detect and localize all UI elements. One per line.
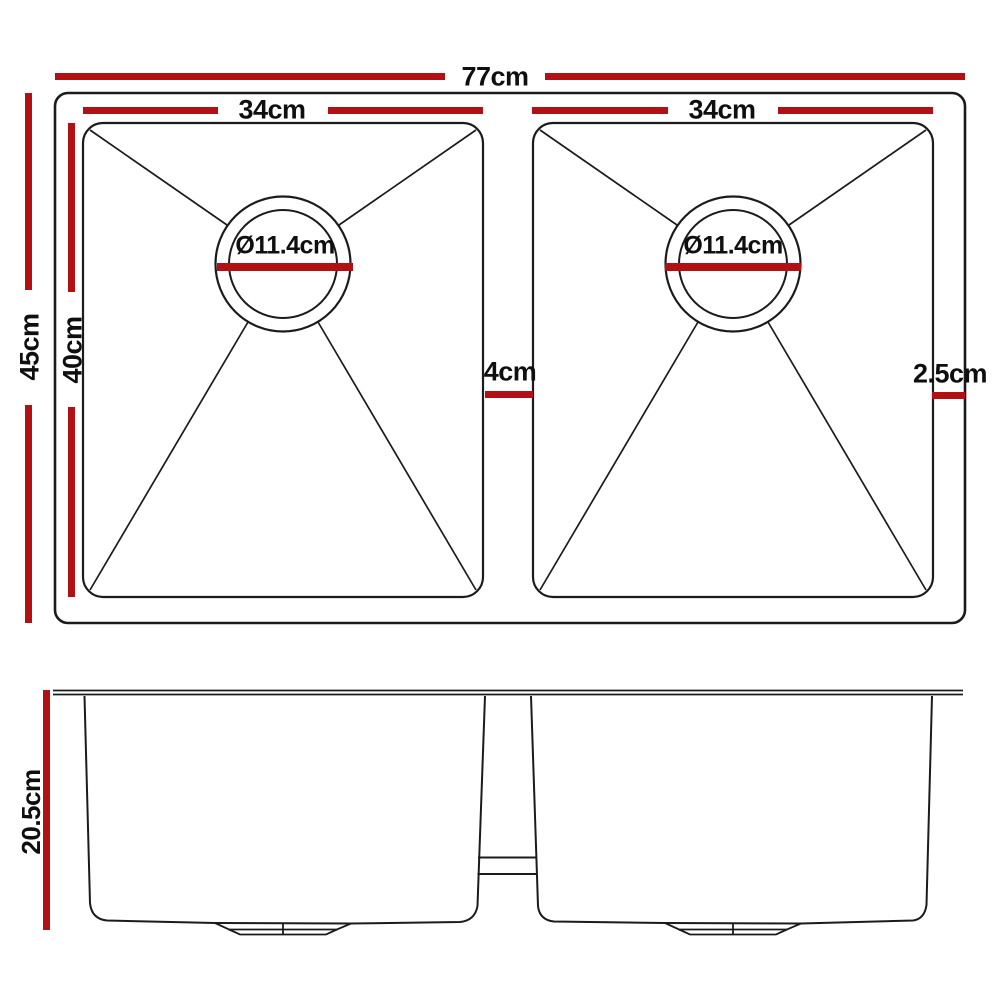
left-bowl-slope-line-tl	[90, 130, 227, 225]
dim-bar-45cm-bottom	[25, 405, 32, 623]
right-bowl-slope-line-bl	[540, 322, 698, 590]
dim-bar-40cm-bottom	[68, 407, 75, 597]
dim-label-bowl-height: 20.5cm	[18, 769, 44, 854]
left-bowl-section-outline	[85, 696, 486, 924]
dim-bar-77cm-right	[545, 73, 965, 80]
diagram-linework	[0, 0, 1000, 1000]
dim-bar-4cm	[485, 391, 533, 398]
dim-bar-drain-right	[665, 263, 801, 271]
dim-bar-34cm-right-a	[532, 107, 668, 114]
dim-bar-2-5cm	[932, 392, 965, 399]
dim-bar-77cm-left	[55, 73, 445, 80]
right-bowl-top-view	[533, 123, 933, 597]
dim-label-right-drain-diameter: Ø11.4cm	[683, 234, 782, 259]
dim-label-overall-depth: 45cm	[17, 313, 44, 380]
dim-bar-drain-left	[217, 263, 353, 271]
dim-bar-34cm-left-a	[83, 107, 218, 114]
right-bowl-slope-line-br	[768, 322, 926, 590]
left-bowl-slope-line-br	[318, 322, 476, 590]
right-bowl-section-outline	[531, 696, 932, 924]
dim-bar-34cm-left-b	[328, 107, 483, 114]
dim-label-center-divider-gap: 4cm	[484, 359, 537, 386]
left-bowl-slope-line-tr	[339, 130, 476, 225]
dim-label-left-bowl-width: 34cm	[238, 97, 305, 124]
right-bowl-slope-line-tl	[540, 130, 677, 225]
dim-bar-45cm-top	[25, 93, 32, 290]
dim-label-bowl-inner-depth: 40cm	[60, 316, 87, 383]
left-bowl-slope-line-bl	[90, 322, 248, 590]
dim-bar-40cm-top	[68, 123, 75, 292]
left-bowl-top-view	[83, 123, 483, 597]
dim-label-left-drain-diameter: Ø11.4cm	[235, 234, 334, 259]
dim-label-right-bowl-width: 34cm	[688, 97, 755, 124]
right-bowl-slope-line-tr	[789, 130, 926, 225]
dim-label-overall-width: 77cm	[461, 64, 528, 91]
dim-label-right-edge-gap: 2.5cm	[913, 361, 987, 388]
sink-dimension-diagram: 77cm 34cm 34cm 45cm 40cm Ø11.4cm Ø11.4cm…	[0, 0, 1000, 1000]
dim-bar-34cm-right-b	[778, 107, 933, 114]
